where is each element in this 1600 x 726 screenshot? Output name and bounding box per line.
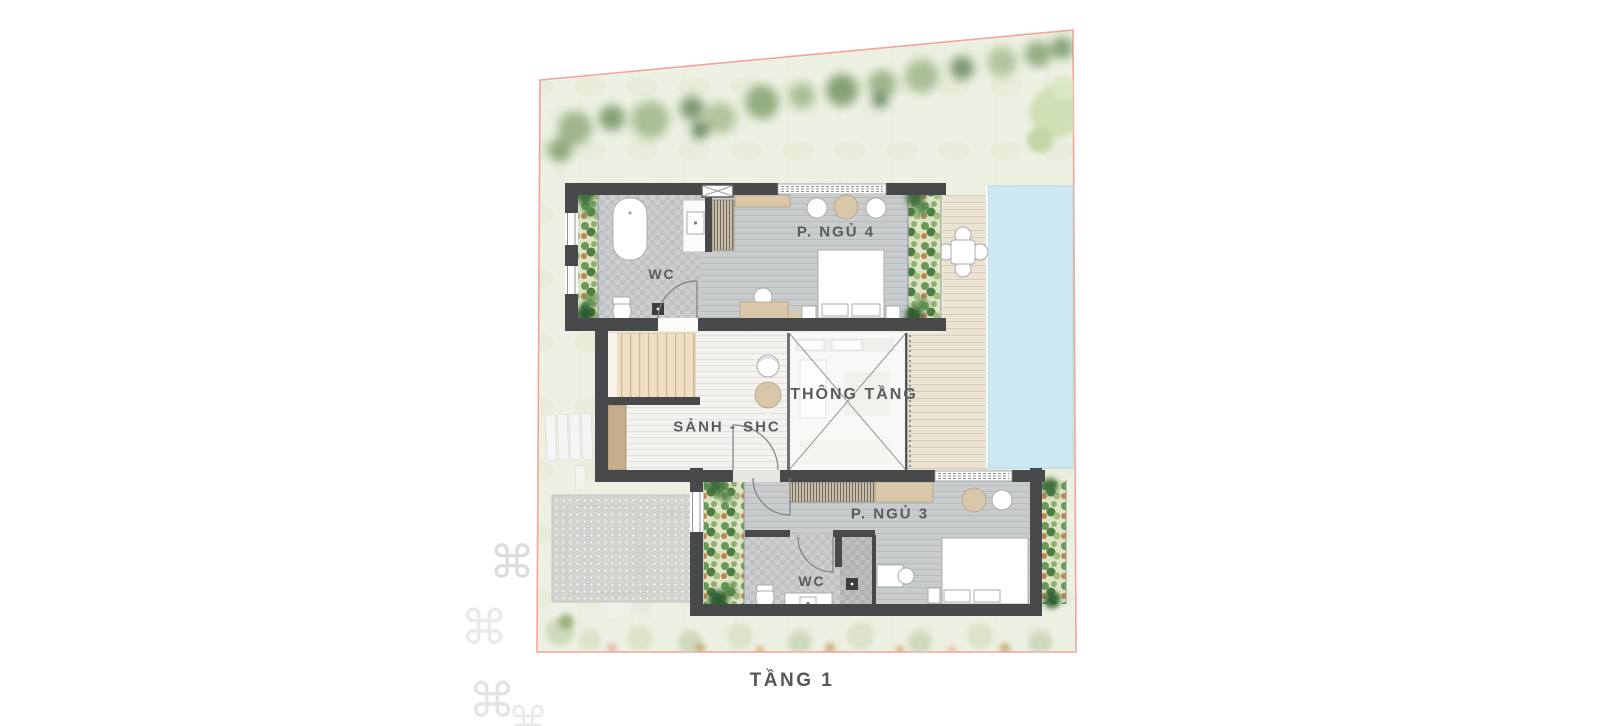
- shelf-bedroom4: [735, 195, 790, 207]
- bathtub: [613, 198, 647, 260]
- round-table-bedroom3: [962, 488, 986, 512]
- label-void: THÔNG TẦNG: [790, 386, 918, 404]
- floor-plan-canvas: [0, 0, 1600, 726]
- wardrobe-bedroom3: [790, 482, 875, 502]
- lounge-chair-hall: [757, 355, 779, 377]
- wardrobe-bedroom4: [712, 200, 734, 250]
- armchair-bedroom3: [992, 490, 1012, 510]
- label-wc-lower: WC: [798, 573, 825, 589]
- label-bedroom4: P. NGỦ 4: [797, 224, 875, 241]
- floor-plan-page: WC P. NGỦ 4 THÔNG TẦNG SẢNH - SHC P. NGỦ…: [0, 0, 1600, 726]
- hall-cabinet: [608, 405, 626, 470]
- armchair-bedroom4-right: [866, 198, 886, 218]
- label-hall: SẢNH - SHC: [673, 419, 781, 436]
- armchair-bedroom4-left: [807, 198, 827, 218]
- floor-title: TẦNG 1: [750, 670, 835, 692]
- shower-lower: [840, 537, 874, 604]
- round-table-bedroom4: [834, 195, 858, 219]
- pouf-hall: [755, 382, 781, 408]
- label-wc-upper: WC: [648, 266, 675, 282]
- swimming-pool: [988, 186, 1073, 468]
- shelf-bedroom3: [875, 482, 933, 502]
- label-bedroom3: P. NGỦ 3: [851, 506, 929, 523]
- staircase: [608, 333, 695, 399]
- nightstand-bedroom3: [928, 588, 940, 603]
- stool-bedroom3: [898, 568, 914, 584]
- planter-lower-right: [1042, 480, 1066, 604]
